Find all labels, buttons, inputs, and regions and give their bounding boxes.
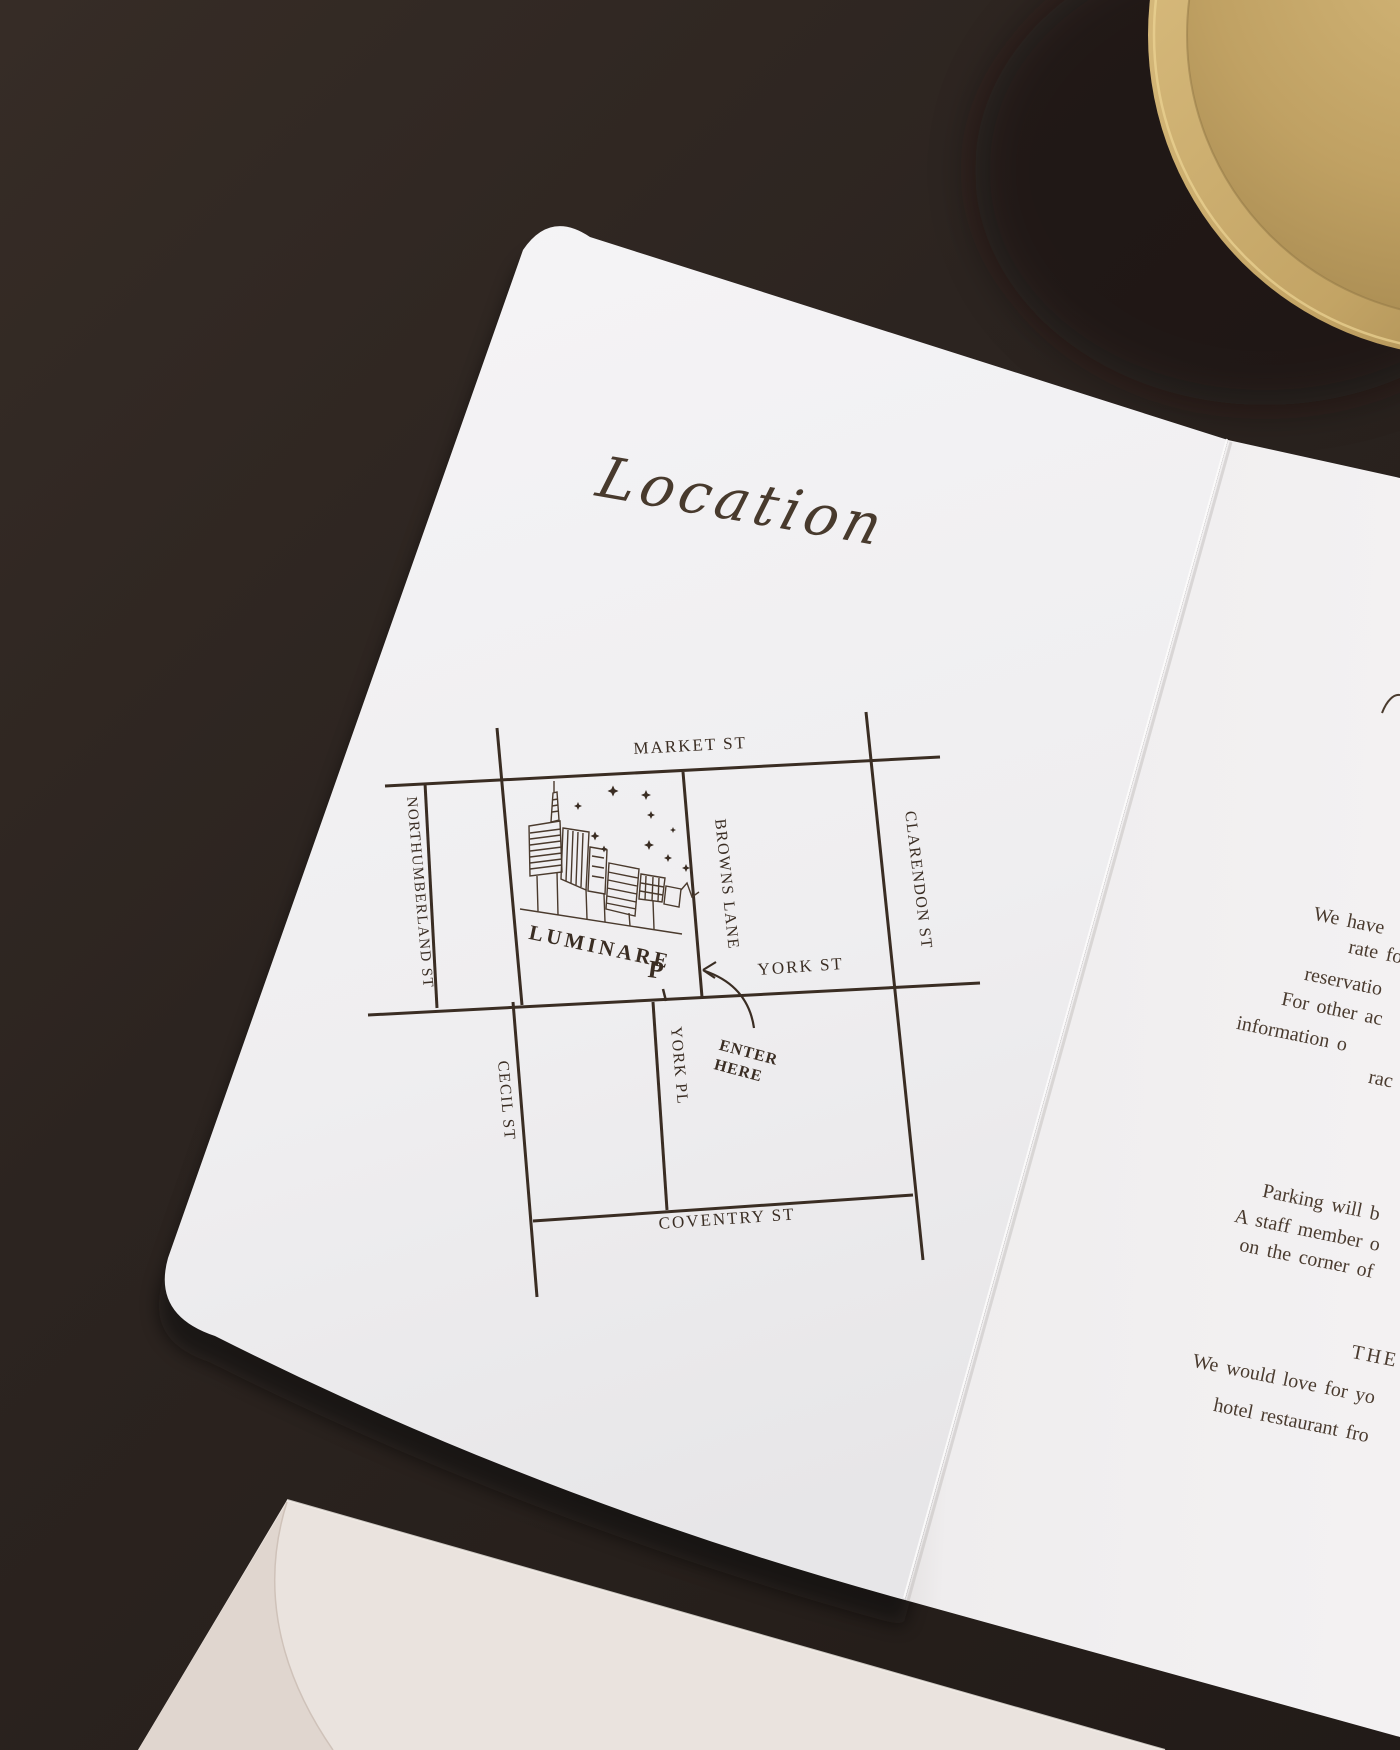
stationery-photo-scene: Location MARKET ST NORTHUMBERLAND ST BRO… [0, 0, 1400, 1750]
card [165, 226, 1400, 1737]
scene-graphics [0, 0, 1400, 1750]
right-page-line: rac [1366, 1066, 1395, 1093]
